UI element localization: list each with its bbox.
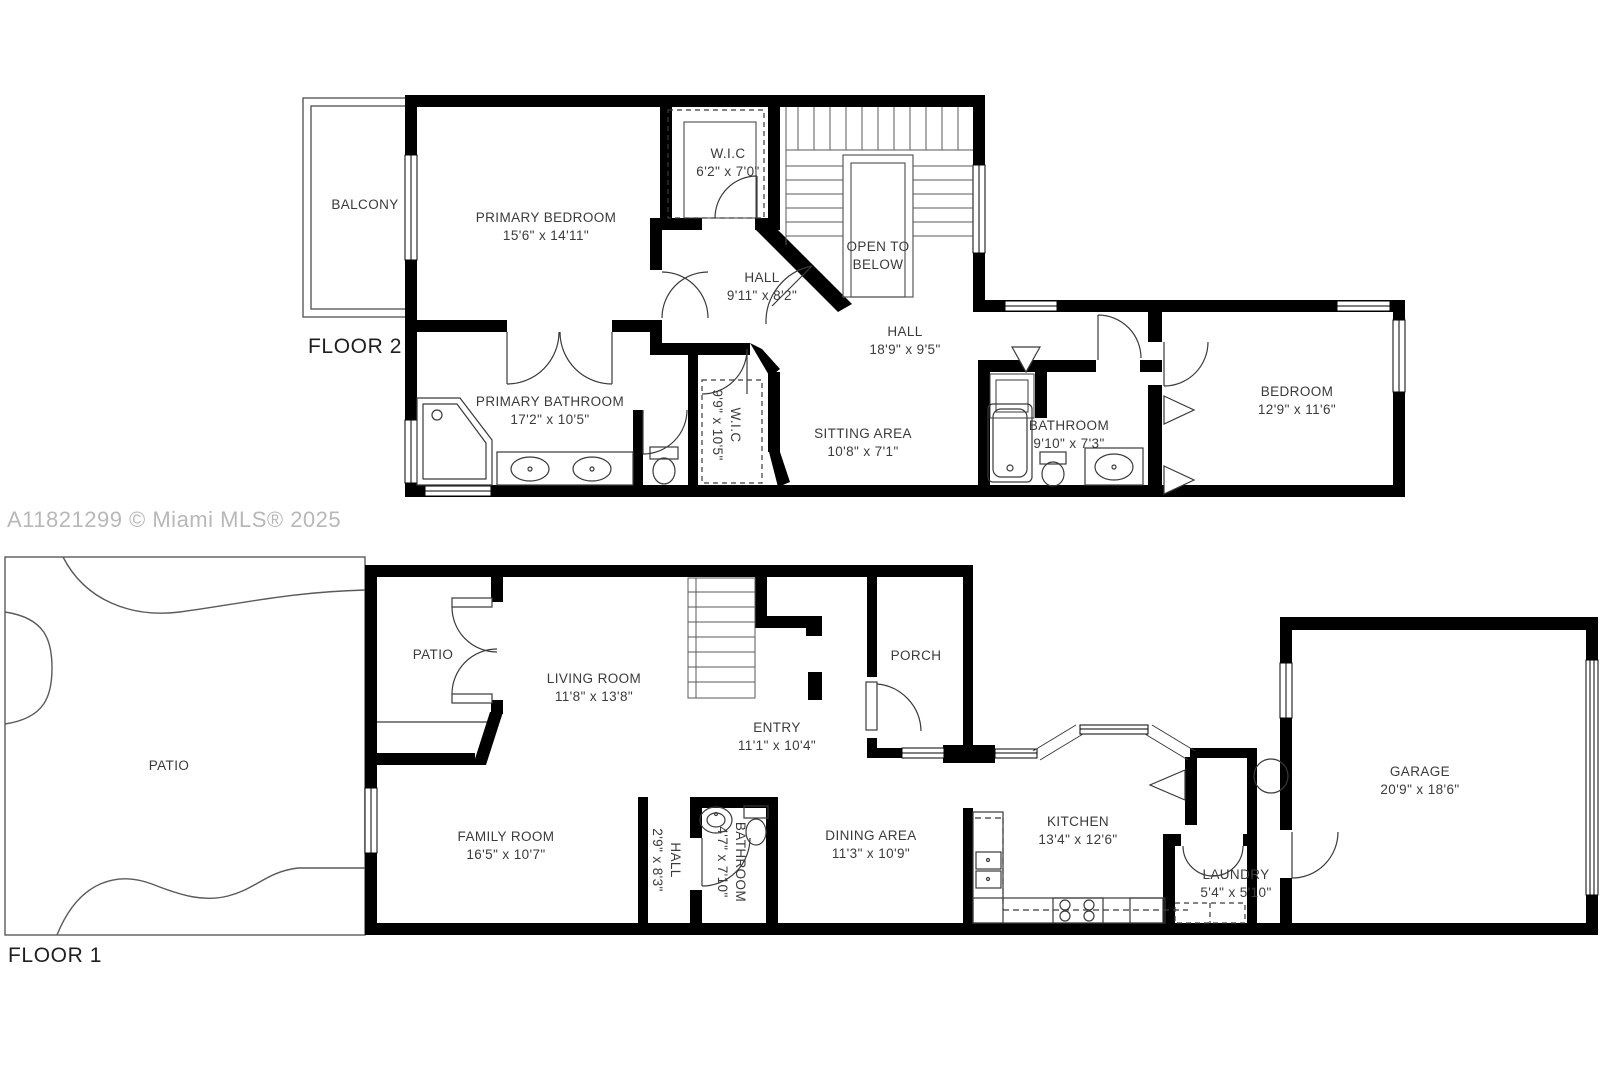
french-door-top-arc [452,607,497,652]
french-door-bottom-arc [452,649,497,694]
bathroom2-door [1098,315,1141,360]
bathtub [988,404,1032,482]
open-to-below-void [843,155,913,297]
sink2-basin [1095,454,1133,480]
balcony-outline [303,98,410,317]
bedroom2-door [1164,342,1208,386]
vanity-counter [497,452,633,485]
tub-faucet [432,410,442,420]
kitchen-sink-top [976,852,1001,869]
french-door-bottom-leaf [452,694,492,703]
toilet-bowl [653,458,675,484]
floor1-windows [365,660,1598,895]
bedroom2-closet-door-top [1164,396,1194,424]
pantry-door [1150,770,1185,800]
garage-door [1586,660,1598,895]
bay-window-left [1033,725,1083,760]
patio-landscape-left [5,612,52,724]
vanity-sink-right [573,457,611,481]
wic-mid-shelving [702,380,762,483]
front-door-arc [877,684,921,731]
bathtub-inner [993,409,1027,477]
patio-outline [5,557,492,935]
patio-boundary [5,557,365,935]
bay-window-right [1145,725,1195,760]
floor-plan: BALCONY PRIMARY BEDROOM15'6" x 14'11" W.… [0,0,1600,1066]
patio-landscape-bottom [57,868,365,935]
primary-bathroom-double-doors [507,332,612,384]
wic-upper-rod [684,122,756,218]
floor1-walls [365,565,1598,935]
bathroom1-sink [700,807,732,833]
toilet1-bowl [746,819,766,845]
corner-tub [417,398,492,485]
french-door-top-leaf [452,598,492,607]
wic-upper-shelving [668,110,764,218]
floor1-fixtures [700,759,1288,923]
garage-entry-door [1292,832,1338,878]
floor1-doors [452,598,1338,886]
floor1-stairs [688,578,755,698]
wic-mid-door [702,349,747,394]
patio-landscape-top [63,557,365,613]
linen-shelf [990,374,1034,418]
bathroom1-door [702,838,750,886]
upper-cabinets-dashed [975,818,1188,910]
floor-plan-canvas [0,0,1600,1066]
front-door-leaf [866,682,877,730]
vanity-sink-left [511,457,549,481]
kitchen-sink-bottom [976,871,1001,888]
floor2-stairs [786,107,973,245]
wic-upper-door [715,176,757,218]
linen-shelf-inner [996,380,1028,412]
laundry-double-doors [1183,846,1243,876]
kitchen-counter-left [973,812,1003,923]
floor2-doors [507,176,1208,494]
primary-bedroom-door [662,272,708,318]
toilet2-bowl [1042,462,1064,486]
